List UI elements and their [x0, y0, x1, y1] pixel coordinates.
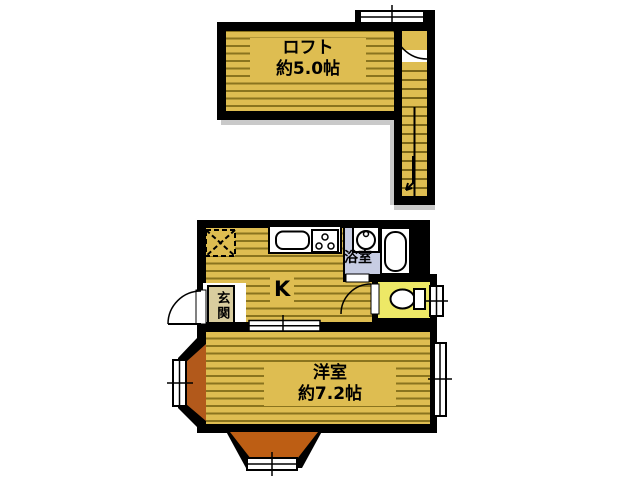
entrance-label: 玄関 [213, 291, 229, 321]
loft-level [217, 5, 435, 205]
toilet-door-opening [371, 284, 379, 314]
entrance-area [168, 283, 246, 324]
front-door-opening [196, 290, 206, 324]
western-room-name: 洋室 [264, 363, 396, 384]
bathroom-label: 浴室 [344, 250, 372, 268]
loft-room-name: ロフト [250, 38, 366, 59]
kitchen-counter [269, 226, 341, 253]
floor-plan-canvas: ロフト 約5.0帖 K 浴室 玄関 洋室 約7.2帖 [0, 0, 640, 480]
sink-icon [276, 232, 309, 250]
corridor-floor [343, 282, 372, 322]
loft-room-size: 約5.0帖 [250, 59, 366, 80]
bathroom-door-opening [346, 274, 369, 282]
kitchen-label: K [270, 276, 294, 302]
toilet-icon [391, 289, 426, 309]
gas-stove-icon [312, 230, 338, 252]
main-level [167, 220, 452, 476]
western-room-size: 約7.2帖 [264, 384, 396, 405]
washing-machine-icon [353, 227, 379, 252]
western-room-label: 洋室 約7.2帖 [264, 363, 396, 406]
loft-label: ロフト 約5.0帖 [250, 38, 366, 81]
bathtub-icon [385, 232, 406, 271]
refrigerator-space-icon [206, 230, 235, 256]
